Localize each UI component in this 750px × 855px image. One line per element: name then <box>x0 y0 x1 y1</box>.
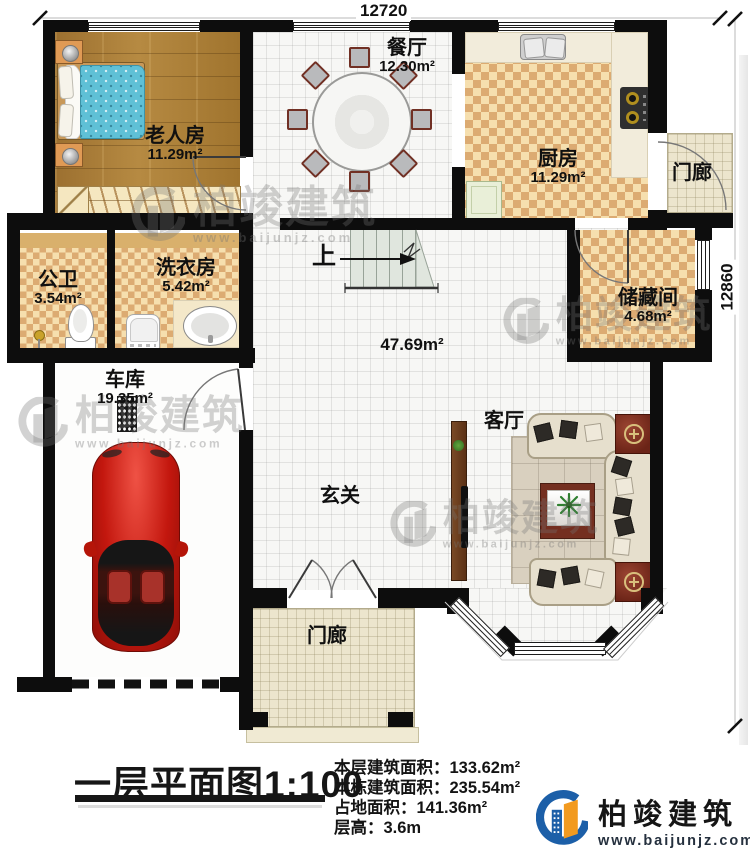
info-footprint-area: 占地面积：141.36m² <box>334 798 520 818</box>
brand-name: 柏竣建筑 <box>598 791 750 833</box>
door-arc <box>193 157 246 210</box>
floor-plan: 12720 12860 老人房 11.29m² 餐厅 12.30m² 厨房 11… <box>0 0 750 855</box>
door-arc <box>184 369 238 430</box>
open-area-label: 47.69m² <box>357 336 467 354</box>
room-label-kitchen: 厨房 11.29m² <box>503 149 613 186</box>
room-label-bathroom: 公卫 3.54m² <box>13 270 103 307</box>
brand-logo: 柏竣建筑 www.baijunjz.com <box>536 790 750 850</box>
info-floor-area-label: 本层建筑面积： <box>334 759 450 777</box>
info-floor-height-value: 3.6m <box>384 819 422 837</box>
room-label-laundry: 洗衣房 5.42m² <box>131 258 241 295</box>
room-label-garage: 车库 19.35m² <box>70 370 180 407</box>
door-leaf <box>289 560 312 598</box>
info-floor-area: 本层建筑面积：133.62m² <box>334 758 520 778</box>
info-floor-height-label: 层高： <box>334 819 384 837</box>
title-underline <box>75 795 325 802</box>
room-label-hall: 玄关 <box>295 486 385 507</box>
room-label-right-porch: 门廊 <box>647 163 737 184</box>
room-label-dining: 餐厅 12.30m² <box>352 38 462 75</box>
room-label-storage: 储藏间 4.68m² <box>593 288 703 325</box>
dimension-right: 12860 <box>718 259 738 314</box>
stairs-landing <box>416 230 434 287</box>
stairs-up-label: 上 <box>310 244 338 269</box>
info-building-area-value: 235.54m² <box>450 779 521 797</box>
door-arc <box>575 230 628 283</box>
stairs-arrow-icon <box>400 253 416 265</box>
door-leaf <box>238 369 245 430</box>
info-floor-height: 层高：3.6m <box>334 818 520 838</box>
plan-annotations <box>0 0 750 855</box>
info-floor-area-value: 133.62m² <box>450 759 521 777</box>
info-footprint-area-value: 141.36m² <box>417 799 488 817</box>
brand-logo-text: 柏竣建筑 www.baijunjz.com <box>598 791 750 849</box>
area-info: 本层建筑面积：133.62m² 本栋建筑面积：235.54m² 占地面积：141… <box>334 758 520 838</box>
door-arc <box>331 560 353 598</box>
brand-url: www.baijunjz.com <box>598 833 750 849</box>
room-label-front-porch: 门廊 <box>282 626 372 647</box>
title-underline-shadow <box>78 805 322 808</box>
door-arc <box>312 560 332 598</box>
door-leaf <box>353 560 376 598</box>
dimension-top: 12720 <box>356 1 411 21</box>
brand-logo-icon <box>536 790 588 850</box>
bay-outline <box>445 602 668 660</box>
room-label-living: 客厅 <box>459 411 549 432</box>
info-footprint-area-label: 占地面积： <box>334 799 417 817</box>
info-building-area-label: 本栋建筑面积： <box>334 779 450 797</box>
room-label-bedroom: 老人房 11.29m² <box>120 126 230 163</box>
info-building-area: 本栋建筑面积：235.54m² <box>334 778 520 798</box>
